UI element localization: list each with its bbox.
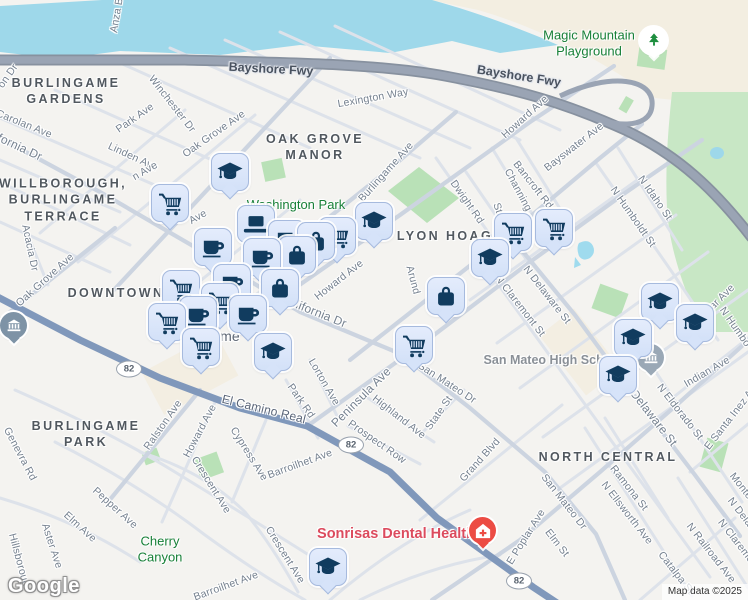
cart-icon [401, 332, 428, 359]
map-marker-tree[interactable] [640, 27, 667, 54]
coffee-icon [235, 301, 262, 328]
cap-icon [217, 159, 244, 186]
hospital-icon [473, 521, 492, 540]
coffee-icon [185, 302, 212, 329]
cap-icon [620, 325, 647, 352]
poi-pin-cart[interactable] [395, 326, 433, 364]
google-logo[interactable]: Google [8, 575, 80, 598]
poi-pin-cart[interactable] [535, 209, 573, 247]
bag-icon [433, 283, 460, 310]
poi-pin-cap[interactable] [641, 283, 679, 321]
map-canvas[interactable]: Google Map data ©2025 Anza Blon DrCarola… [0, 0, 748, 600]
cap-icon [682, 310, 709, 337]
cap-icon [605, 362, 632, 389]
poi-pin-cap[interactable] [599, 356, 637, 394]
map-marker-hospital[interactable] [469, 517, 496, 544]
poi-pin-bag[interactable] [427, 277, 465, 315]
coffee-icon [249, 244, 276, 271]
neighborhood-label: WILLBOROUGH, BURLINGAME TERRACE [0, 176, 127, 225]
park-label: Cherry Canyon [138, 533, 183, 564]
bag-icon [284, 242, 311, 269]
poi-pin-cart[interactable] [151, 184, 189, 222]
cart-icon [154, 309, 181, 336]
cap-icon [260, 339, 287, 366]
poi-pin-cap[interactable] [614, 319, 652, 357]
poi-pin-cap[interactable] [676, 304, 714, 342]
cap-icon [647, 289, 674, 316]
neighborhood-label: NORTH CENTRAL [539, 449, 678, 465]
poi-pin-cap[interactable] [355, 202, 393, 240]
cart-icon [188, 334, 215, 361]
cap-icon [361, 208, 388, 235]
laptop-icon [243, 211, 270, 238]
coffee-icon [200, 234, 227, 261]
bag-icon [267, 275, 294, 302]
route-82-shield: 82 [506, 573, 532, 590]
map-attribution: Map data ©2025 [662, 584, 748, 600]
tree-icon [644, 31, 663, 50]
poi-pin-coffee[interactable] [194, 228, 232, 266]
poi-label[interactable]: Sonrisas Dental Health [317, 526, 475, 542]
poi-pin-cap[interactable] [471, 239, 509, 277]
poi-pin-cap[interactable] [254, 333, 292, 371]
neighborhood-label: OAK GROVE MANOR [266, 131, 364, 164]
cart-icon [157, 190, 184, 217]
neighborhood-label: DOWNTOWN [68, 285, 165, 301]
poi-pin-coffee[interactable] [229, 295, 267, 333]
route-82-shield: 82 [116, 361, 142, 378]
neighborhood-label: BURLINGAME PARK [32, 418, 141, 451]
poi-pin-cart[interactable] [182, 328, 220, 366]
poi-pin-cap[interactable] [211, 153, 249, 191]
cap-icon [477, 245, 504, 272]
map-marker-bank[interactable] [0, 312, 27, 339]
neighborhood-label: BURLINGAME GARDENS [12, 75, 121, 108]
poi-pin-cap[interactable] [309, 548, 347, 586]
cap-icon [315, 554, 342, 581]
cart-icon [541, 215, 568, 242]
park-label: Magic Mountain Playground [543, 27, 635, 58]
poi-pin-cart[interactable] [148, 303, 186, 341]
route-82-shield: 82 [338, 437, 364, 454]
bank-icon [4, 316, 23, 335]
